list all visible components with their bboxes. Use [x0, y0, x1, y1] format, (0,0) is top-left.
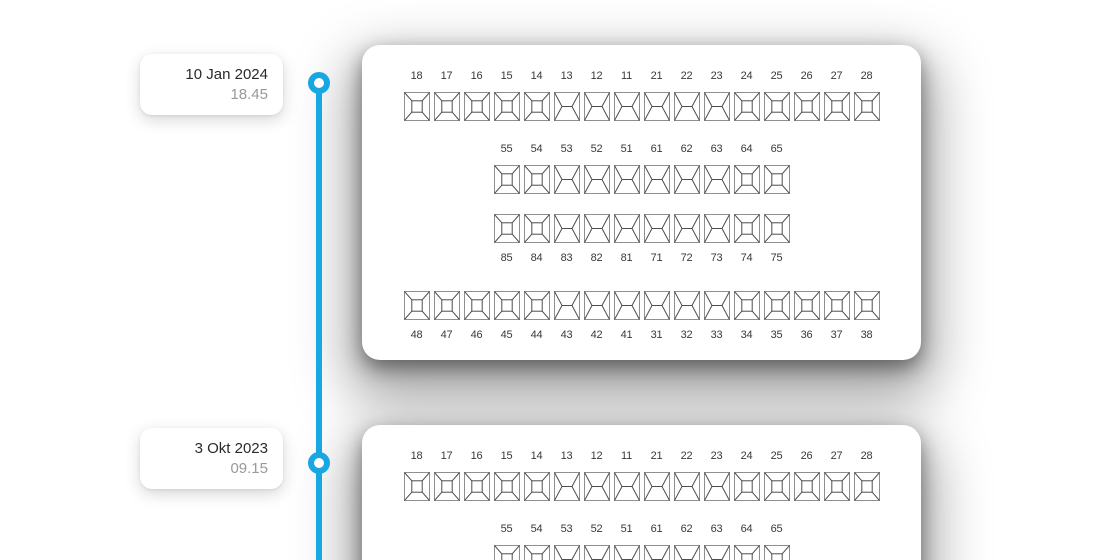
tooth-posterior-icon [434, 472, 460, 501]
tooth-16[interactable]: 16 [464, 449, 490, 501]
tooth-62[interactable]: 62 [674, 142, 700, 194]
tooth-number: 16 [471, 449, 483, 463]
tooth-anterior-icon [674, 291, 700, 320]
tooth-36[interactable]: 36 [794, 291, 820, 342]
tooth-anterior-icon [554, 165, 580, 194]
tooth-41[interactable]: 41 [614, 291, 640, 342]
tooth-45[interactable]: 45 [494, 291, 520, 342]
tooth-number: 25 [771, 449, 783, 463]
tooth-number: 84 [531, 251, 543, 265]
tooth-16[interactable]: 16 [464, 69, 490, 121]
tooth-63[interactable]: 63 [704, 142, 730, 194]
tooth-33[interactable]: 33 [704, 291, 730, 342]
tooth-11[interactable]: 11 [614, 69, 640, 121]
tooth-posterior-icon [764, 291, 790, 320]
tooth-posterior-icon [494, 545, 520, 560]
odontogram-card: 1817161514131211212223242526272855545352… [362, 45, 921, 360]
tooth-65[interactable]: 65 [764, 522, 790, 560]
tooth-35[interactable]: 35 [764, 291, 790, 342]
odontogram-card: 1817161514131211212223242526272855545352… [362, 425, 921, 560]
tooth-75[interactable]: 75 [764, 214, 790, 265]
tooth-posterior-icon [794, 472, 820, 501]
tooth-number: 17 [441, 69, 453, 83]
tooth-posterior-icon [764, 92, 790, 121]
tooth-anterior-icon [704, 545, 730, 560]
tooth-posterior-icon [404, 472, 430, 501]
tooth-number: 14 [531, 449, 543, 463]
tooth-posterior-icon [464, 291, 490, 320]
tooth-posterior-icon [854, 472, 880, 501]
tooth-anterior-icon [584, 165, 610, 194]
timeline-date-card[interactable]: 10 Jan 2024 18.45 [140, 54, 283, 115]
tooth-posterior-icon [524, 472, 550, 501]
timeline-date-card[interactable]: 3 Okt 2023 09.15 [140, 428, 283, 489]
tooth-72[interactable]: 72 [674, 214, 700, 265]
tooth-number: 16 [471, 69, 483, 83]
tooth-posterior-icon [524, 214, 550, 243]
timeline-time: 09.15 [230, 459, 268, 479]
tooth-13[interactable]: 13 [554, 449, 580, 501]
tooth-number: 47 [441, 328, 453, 342]
tooth-posterior-icon [734, 214, 760, 243]
tooth-anterior-icon [674, 545, 700, 560]
tooth-number: 53 [561, 522, 573, 536]
tooth-52[interactable]: 52 [584, 142, 610, 194]
odontogram: 1817161514131211212223242526272855545352… [362, 69, 921, 342]
tooth-38[interactable]: 38 [854, 291, 880, 342]
tooth-23[interactable]: 23 [704, 69, 730, 121]
tooth-number: 24 [741, 449, 753, 463]
tooth-number: 13 [561, 449, 573, 463]
tooth-anterior-icon [554, 214, 580, 243]
tooth-51[interactable]: 51 [614, 522, 640, 560]
tooth-28[interactable]: 28 [854, 69, 880, 121]
tooth-number: 54 [531, 522, 543, 536]
tooth-anterior-icon [584, 92, 610, 121]
tooth-number: 44 [531, 328, 543, 342]
tooth-64[interactable]: 64 [734, 142, 760, 194]
tooth-posterior-icon [524, 291, 550, 320]
tooth-number: 22 [681, 449, 693, 463]
tooth-number: 85 [501, 251, 513, 265]
tooth-55[interactable]: 55 [494, 522, 520, 560]
tooth-34[interactable]: 34 [734, 291, 760, 342]
tooth-53[interactable]: 53 [554, 142, 580, 194]
tooth-anterior-icon [614, 291, 640, 320]
tooth-posterior-icon [524, 92, 550, 121]
tooth-row: 85848382817172737475 [362, 214, 921, 265]
tooth-posterior-icon [494, 165, 520, 194]
tooth-number: 64 [741, 522, 753, 536]
tooth-posterior-icon [524, 545, 550, 560]
tooth-number: 65 [771, 522, 783, 536]
tooth-anterior-icon [674, 214, 700, 243]
tooth-anterior-icon [644, 291, 670, 320]
tooth-anterior-icon [584, 545, 610, 560]
tooth-48[interactable]: 48 [404, 291, 430, 342]
tooth-anterior-icon [614, 472, 640, 501]
tooth-24[interactable]: 24 [734, 449, 760, 501]
tooth-number: 72 [681, 251, 693, 265]
tooth-number: 63 [711, 522, 723, 536]
tooth-62[interactable]: 62 [674, 522, 700, 560]
tooth-number: 43 [561, 328, 573, 342]
tooth-number: 52 [591, 522, 603, 536]
tooth-number: 11 [621, 69, 632, 83]
tooth-number: 46 [471, 328, 483, 342]
tooth-number: 55 [501, 142, 513, 156]
tooth-number: 71 [651, 251, 663, 265]
tooth-number: 41 [621, 328, 633, 342]
tooth-number: 81 [621, 251, 633, 265]
tooth-posterior-icon [464, 92, 490, 121]
tooth-number: 61 [651, 522, 663, 536]
tooth-row: 18171615141312112122232425262728 [362, 69, 921, 121]
tooth-number: 24 [741, 69, 753, 83]
tooth-18[interactable]: 18 [404, 69, 430, 121]
tooth-37[interactable]: 37 [824, 291, 850, 342]
tooth-anterior-icon [644, 545, 670, 560]
tooth-21[interactable]: 21 [644, 449, 670, 501]
tooth-number: 83 [561, 251, 573, 265]
tooth-anterior-icon [644, 472, 670, 501]
tooth-number: 62 [681, 522, 693, 536]
timeline-date: 3 Okt 2023 [195, 439, 268, 459]
tooth-63[interactable]: 63 [704, 522, 730, 560]
tooth-85[interactable]: 85 [494, 214, 520, 265]
tooth-posterior-icon [464, 472, 490, 501]
tooth-27[interactable]: 27 [824, 69, 850, 121]
tooth-15[interactable]: 15 [494, 449, 520, 501]
tooth-number: 31 [651, 328, 663, 342]
tooth-number: 42 [591, 328, 603, 342]
tooth-number: 14 [531, 69, 543, 83]
timeline-date: 10 Jan 2024 [185, 65, 268, 85]
tooth-posterior-icon [764, 214, 790, 243]
tooth-posterior-icon [764, 165, 790, 194]
tooth-number: 45 [501, 328, 513, 342]
odontogram: 1817161514131211212223242526272855545352… [362, 449, 921, 560]
tooth-posterior-icon [854, 291, 880, 320]
tooth-number: 28 [861, 69, 873, 83]
tooth-posterior-icon [824, 92, 850, 121]
tooth-posterior-icon [734, 92, 760, 121]
tooth-anterior-icon [644, 214, 670, 243]
tooth-13[interactable]: 13 [554, 69, 580, 121]
tooth-15[interactable]: 15 [494, 69, 520, 121]
tooth-81[interactable]: 81 [614, 214, 640, 265]
tooth-number: 48 [411, 328, 423, 342]
tooth-number: 12 [591, 449, 603, 463]
tooth-22[interactable]: 22 [674, 449, 700, 501]
tooth-number: 74 [741, 251, 753, 265]
tooth-posterior-icon [494, 472, 520, 501]
tooth-posterior-icon [794, 291, 820, 320]
tooth-number: 12 [591, 69, 603, 83]
tooth-number: 36 [801, 328, 813, 342]
tooth-number: 64 [741, 142, 753, 156]
tooth-anterior-icon [644, 92, 670, 121]
tooth-number: 18 [411, 449, 423, 463]
tooth-64[interactable]: 64 [734, 522, 760, 560]
tooth-posterior-icon [404, 291, 430, 320]
tooth-row: 48474645444342413132333435363738 [362, 291, 921, 342]
tooth-number: 27 [831, 69, 843, 83]
tooth-number: 51 [621, 142, 633, 156]
tooth-number: 21 [651, 69, 663, 83]
timeline-canvas: 10 Jan 2024 18.45 3 Okt 2023 09.15 18171… [0, 0, 1100, 560]
tooth-61[interactable]: 61 [644, 142, 670, 194]
tooth-number: 54 [531, 142, 543, 156]
tooth-anterior-icon [584, 291, 610, 320]
tooth-25[interactable]: 25 [764, 449, 790, 501]
tooth-number: 18 [411, 69, 423, 83]
tooth-number: 26 [801, 69, 813, 83]
tooth-11[interactable]: 11 [614, 449, 640, 501]
tooth-posterior-icon [494, 291, 520, 320]
timeline-time: 18.45 [230, 85, 268, 105]
tooth-26[interactable]: 26 [794, 449, 820, 501]
tooth-number: 35 [771, 328, 783, 342]
tooth-14[interactable]: 14 [524, 449, 550, 501]
tooth-anterior-icon [614, 214, 640, 243]
tooth-number: 34 [741, 328, 753, 342]
tooth-24[interactable]: 24 [734, 69, 760, 121]
tooth-row: 55545352516162636465 [362, 142, 921, 194]
tooth-43[interactable]: 43 [554, 291, 580, 342]
tooth-anterior-icon [704, 472, 730, 501]
tooth-17[interactable]: 17 [434, 69, 460, 121]
tooth-posterior-icon [524, 165, 550, 194]
tooth-posterior-icon [734, 545, 760, 560]
tooth-32[interactable]: 32 [674, 291, 700, 342]
tooth-12[interactable]: 12 [584, 449, 610, 501]
tooth-number: 25 [771, 69, 783, 83]
tooth-anterior-icon [554, 545, 580, 560]
tooth-83[interactable]: 83 [554, 214, 580, 265]
tooth-posterior-icon [734, 165, 760, 194]
tooth-number: 27 [831, 449, 843, 463]
tooth-number: 17 [441, 449, 453, 463]
tooth-number: 23 [711, 449, 723, 463]
tooth-anterior-icon [614, 165, 640, 194]
tooth-number: 73 [711, 251, 723, 265]
tooth-number: 33 [711, 328, 723, 342]
tooth-54[interactable]: 54 [524, 142, 550, 194]
tooth-12[interactable]: 12 [584, 69, 610, 121]
tooth-number: 32 [681, 328, 693, 342]
tooth-17[interactable]: 17 [434, 449, 460, 501]
tooth-53[interactable]: 53 [554, 522, 580, 560]
tooth-number: 62 [681, 142, 693, 156]
tooth-posterior-icon [824, 291, 850, 320]
tooth-number: 15 [501, 69, 513, 83]
tooth-posterior-icon [824, 472, 850, 501]
tooth-52[interactable]: 52 [584, 522, 610, 560]
timeline-node[interactable] [308, 452, 330, 474]
tooth-posterior-icon [494, 214, 520, 243]
tooth-47[interactable]: 47 [434, 291, 460, 342]
tooth-anterior-icon [554, 472, 580, 501]
tooth-number: 23 [711, 69, 723, 83]
tooth-posterior-icon [734, 472, 760, 501]
tooth-54[interactable]: 54 [524, 522, 550, 560]
tooth-22[interactable]: 22 [674, 69, 700, 121]
tooth-number: 26 [801, 449, 813, 463]
tooth-anterior-icon [704, 291, 730, 320]
tooth-number: 15 [501, 449, 513, 463]
tooth-anterior-icon [554, 92, 580, 121]
tooth-posterior-icon [734, 291, 760, 320]
tooth-anterior-icon [644, 165, 670, 194]
timeline-line [316, 83, 322, 560]
tooth-25[interactable]: 25 [764, 69, 790, 121]
tooth-anterior-icon [674, 92, 700, 121]
tooth-51[interactable]: 51 [614, 142, 640, 194]
tooth-26[interactable]: 26 [794, 69, 820, 121]
tooth-61[interactable]: 61 [644, 522, 670, 560]
timeline-node[interactable] [308, 72, 330, 94]
tooth-number: 38 [861, 328, 873, 342]
tooth-anterior-icon [584, 472, 610, 501]
tooth-65[interactable]: 65 [764, 142, 790, 194]
tooth-42[interactable]: 42 [584, 291, 610, 342]
tooth-18[interactable]: 18 [404, 449, 430, 501]
tooth-anterior-icon [554, 291, 580, 320]
tooth-73[interactable]: 73 [704, 214, 730, 265]
tooth-anterior-icon [584, 214, 610, 243]
tooth-27[interactable]: 27 [824, 449, 850, 501]
tooth-row: 55545352516162636465 [362, 522, 921, 560]
tooth-posterior-icon [404, 92, 430, 121]
tooth-14[interactable]: 14 [524, 69, 550, 121]
tooth-posterior-icon [434, 291, 460, 320]
tooth-number: 61 [651, 142, 663, 156]
tooth-anterior-icon [704, 214, 730, 243]
tooth-44[interactable]: 44 [524, 291, 550, 342]
tooth-anterior-icon [614, 545, 640, 560]
tooth-46[interactable]: 46 [464, 291, 490, 342]
tooth-number: 55 [501, 522, 513, 536]
tooth-number: 51 [621, 522, 633, 536]
tooth-anterior-icon [674, 472, 700, 501]
tooth-number: 22 [681, 69, 693, 83]
tooth-number: 75 [771, 251, 783, 265]
tooth-23[interactable]: 23 [704, 449, 730, 501]
tooth-31[interactable]: 31 [644, 291, 670, 342]
tooth-21[interactable]: 21 [644, 69, 670, 121]
tooth-74[interactable]: 74 [734, 214, 760, 265]
tooth-anterior-icon [674, 165, 700, 194]
tooth-number: 63 [711, 142, 723, 156]
tooth-number: 11 [621, 449, 632, 463]
tooth-posterior-icon [794, 92, 820, 121]
tooth-posterior-icon [494, 92, 520, 121]
tooth-number: 82 [591, 251, 603, 265]
tooth-number: 21 [651, 449, 663, 463]
tooth-anterior-icon [614, 92, 640, 121]
tooth-84[interactable]: 84 [524, 214, 550, 265]
tooth-anterior-icon [704, 165, 730, 194]
tooth-number: 52 [591, 142, 603, 156]
tooth-posterior-icon [764, 472, 790, 501]
tooth-82[interactable]: 82 [584, 214, 610, 265]
tooth-posterior-icon [854, 92, 880, 121]
tooth-number: 37 [831, 328, 843, 342]
tooth-posterior-icon [764, 545, 790, 560]
tooth-number: 28 [861, 449, 873, 463]
tooth-row: 18171615141312112122232425262728 [362, 449, 921, 501]
tooth-55[interactable]: 55 [494, 142, 520, 194]
tooth-anterior-icon [704, 92, 730, 121]
tooth-28[interactable]: 28 [854, 449, 880, 501]
tooth-71[interactable]: 71 [644, 214, 670, 265]
tooth-number: 53 [561, 142, 573, 156]
tooth-posterior-icon [434, 92, 460, 121]
tooth-number: 65 [771, 142, 783, 156]
tooth-number: 13 [561, 69, 573, 83]
